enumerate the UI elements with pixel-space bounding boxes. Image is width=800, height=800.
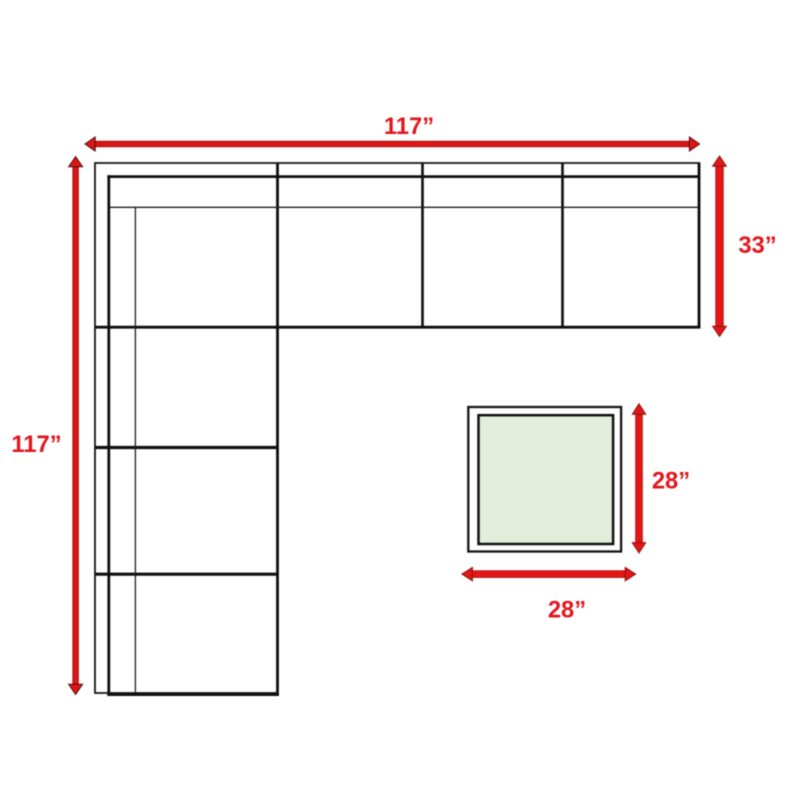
svg-text:117”: 117” — [11, 431, 61, 458]
svg-text:117”: 117” — [384, 113, 434, 140]
svg-text:28”: 28” — [548, 597, 586, 624]
svg-text:28”: 28” — [652, 467, 690, 494]
svg-text:33”: 33” — [738, 232, 776, 259]
